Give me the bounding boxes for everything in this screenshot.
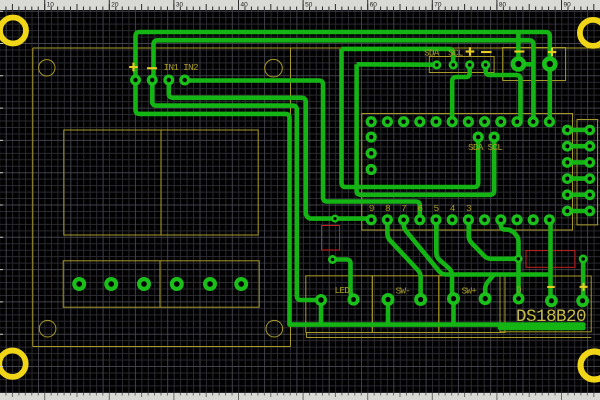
svg-text:SW+: SW+: [462, 286, 478, 297]
svg-text:LED: LED: [335, 285, 351, 296]
svg-text:80: 80: [499, 2, 507, 9]
svg-text:DS18B20: DS18B20: [516, 307, 586, 327]
svg-text:70: 70: [434, 2, 442, 9]
svg-text:30: 30: [176, 2, 184, 9]
svg-text:20: 20: [111, 2, 119, 9]
svg-text:50: 50: [305, 2, 313, 9]
svg-text:SDA: SDA: [424, 48, 440, 59]
svg-text:SW-: SW-: [396, 286, 411, 297]
svg-text:IN1 IN2: IN1 IN2: [164, 62, 199, 73]
svg-text:7: 7: [401, 203, 406, 214]
svg-text:90: 90: [564, 2, 572, 9]
svg-text:60: 60: [370, 2, 378, 9]
svg-text:SDA: SDA: [468, 142, 484, 153]
svg-text:SCL: SCL: [488, 142, 504, 153]
svg-text:10: 10: [47, 2, 55, 9]
svg-text:D: D: [516, 286, 521, 296]
svg-text:SCL: SCL: [448, 48, 464, 59]
svg-text:40: 40: [241, 2, 249, 9]
